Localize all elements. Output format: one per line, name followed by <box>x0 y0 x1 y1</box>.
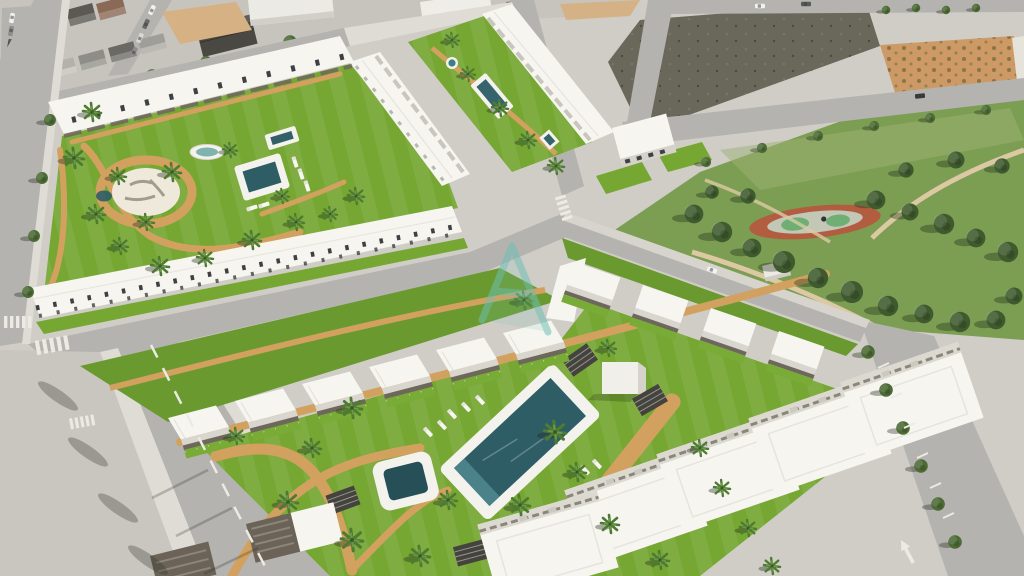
road-top-edge <box>660 0 1024 14</box>
garden-pond <box>96 191 112 202</box>
round-feature <box>446 57 458 69</box>
render-canvas <box>0 0 1024 576</box>
aerial-render <box>0 0 1024 576</box>
